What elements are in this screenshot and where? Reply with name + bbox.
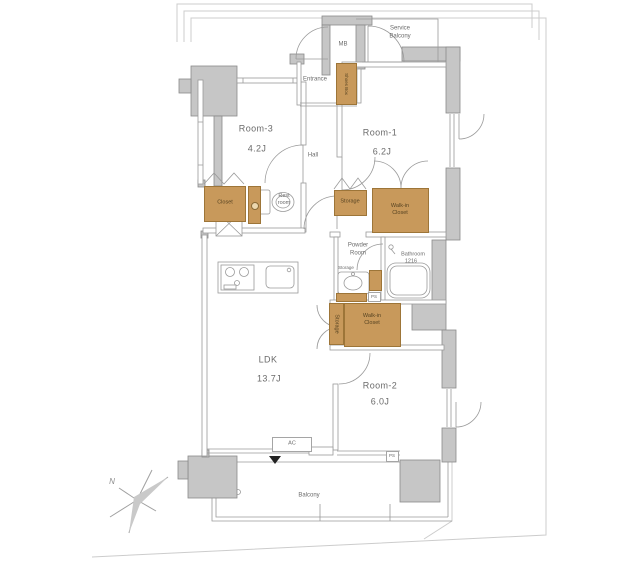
balcony-label: Balcony bbox=[298, 492, 319, 500]
ac-label: AC bbox=[288, 441, 296, 448]
storage-ldk-label: Storage bbox=[333, 314, 340, 333]
entrance-label: Entrance bbox=[303, 76, 327, 84]
ldk-name: LDK bbox=[259, 354, 278, 365]
walk-in-closet-2-label: Walk-in Closet bbox=[363, 313, 381, 327]
room3-size: 4.2J bbox=[248, 143, 267, 154]
bathroom-size: 1216 bbox=[405, 259, 417, 266]
closet-label: Closet bbox=[217, 200, 233, 207]
powder-room-label: Powder Room bbox=[348, 243, 368, 258]
ps-powder-label: PS bbox=[371, 294, 377, 300]
rest-room-label: Rest room bbox=[278, 193, 291, 207]
shoes-box-label: Shoes Box bbox=[343, 73, 349, 95]
washstand-counter bbox=[248, 186, 261, 224]
room1-size: 6.2J bbox=[373, 146, 392, 157]
kitchen-counter bbox=[218, 262, 298, 293]
storage-strip-powder bbox=[336, 293, 367, 302]
mb-label: MB bbox=[339, 41, 348, 49]
service-balcony-label: Service Balcony bbox=[389, 26, 410, 41]
washbowl-icon bbox=[251, 202, 259, 210]
room3-name: Room-3 bbox=[239, 123, 273, 134]
floor-plan: Room-3 4.2J Room-1 6.2J Room-2 6.0J LDK … bbox=[0, 0, 640, 569]
ps-room2-label: PS bbox=[389, 453, 395, 459]
storage-powder-label: Storage bbox=[338, 265, 354, 271]
ldk-size: 13.7J bbox=[257, 373, 281, 384]
bathroom-name: Bathroom bbox=[401, 252, 425, 259]
washer-space-box bbox=[369, 270, 382, 291]
walk-in-closet-1-label: Walk-in Closet bbox=[391, 203, 409, 217]
hall-label: Hall bbox=[308, 152, 318, 160]
washbasin bbox=[338, 272, 369, 294]
compass-north-star bbox=[110, 470, 168, 533]
entry-triangle-marker bbox=[269, 456, 281, 464]
storage-hall-label: Storage bbox=[340, 199, 359, 206]
north-label: N bbox=[109, 477, 115, 487]
room2-size: 6.0J bbox=[371, 396, 390, 407]
room2-name: Room-2 bbox=[363, 380, 397, 391]
walls bbox=[178, 16, 460, 502]
site-boundary-lines bbox=[92, 4, 546, 557]
room1-name: Room-1 bbox=[363, 127, 397, 138]
floorplan-drawing bbox=[0, 0, 640, 569]
